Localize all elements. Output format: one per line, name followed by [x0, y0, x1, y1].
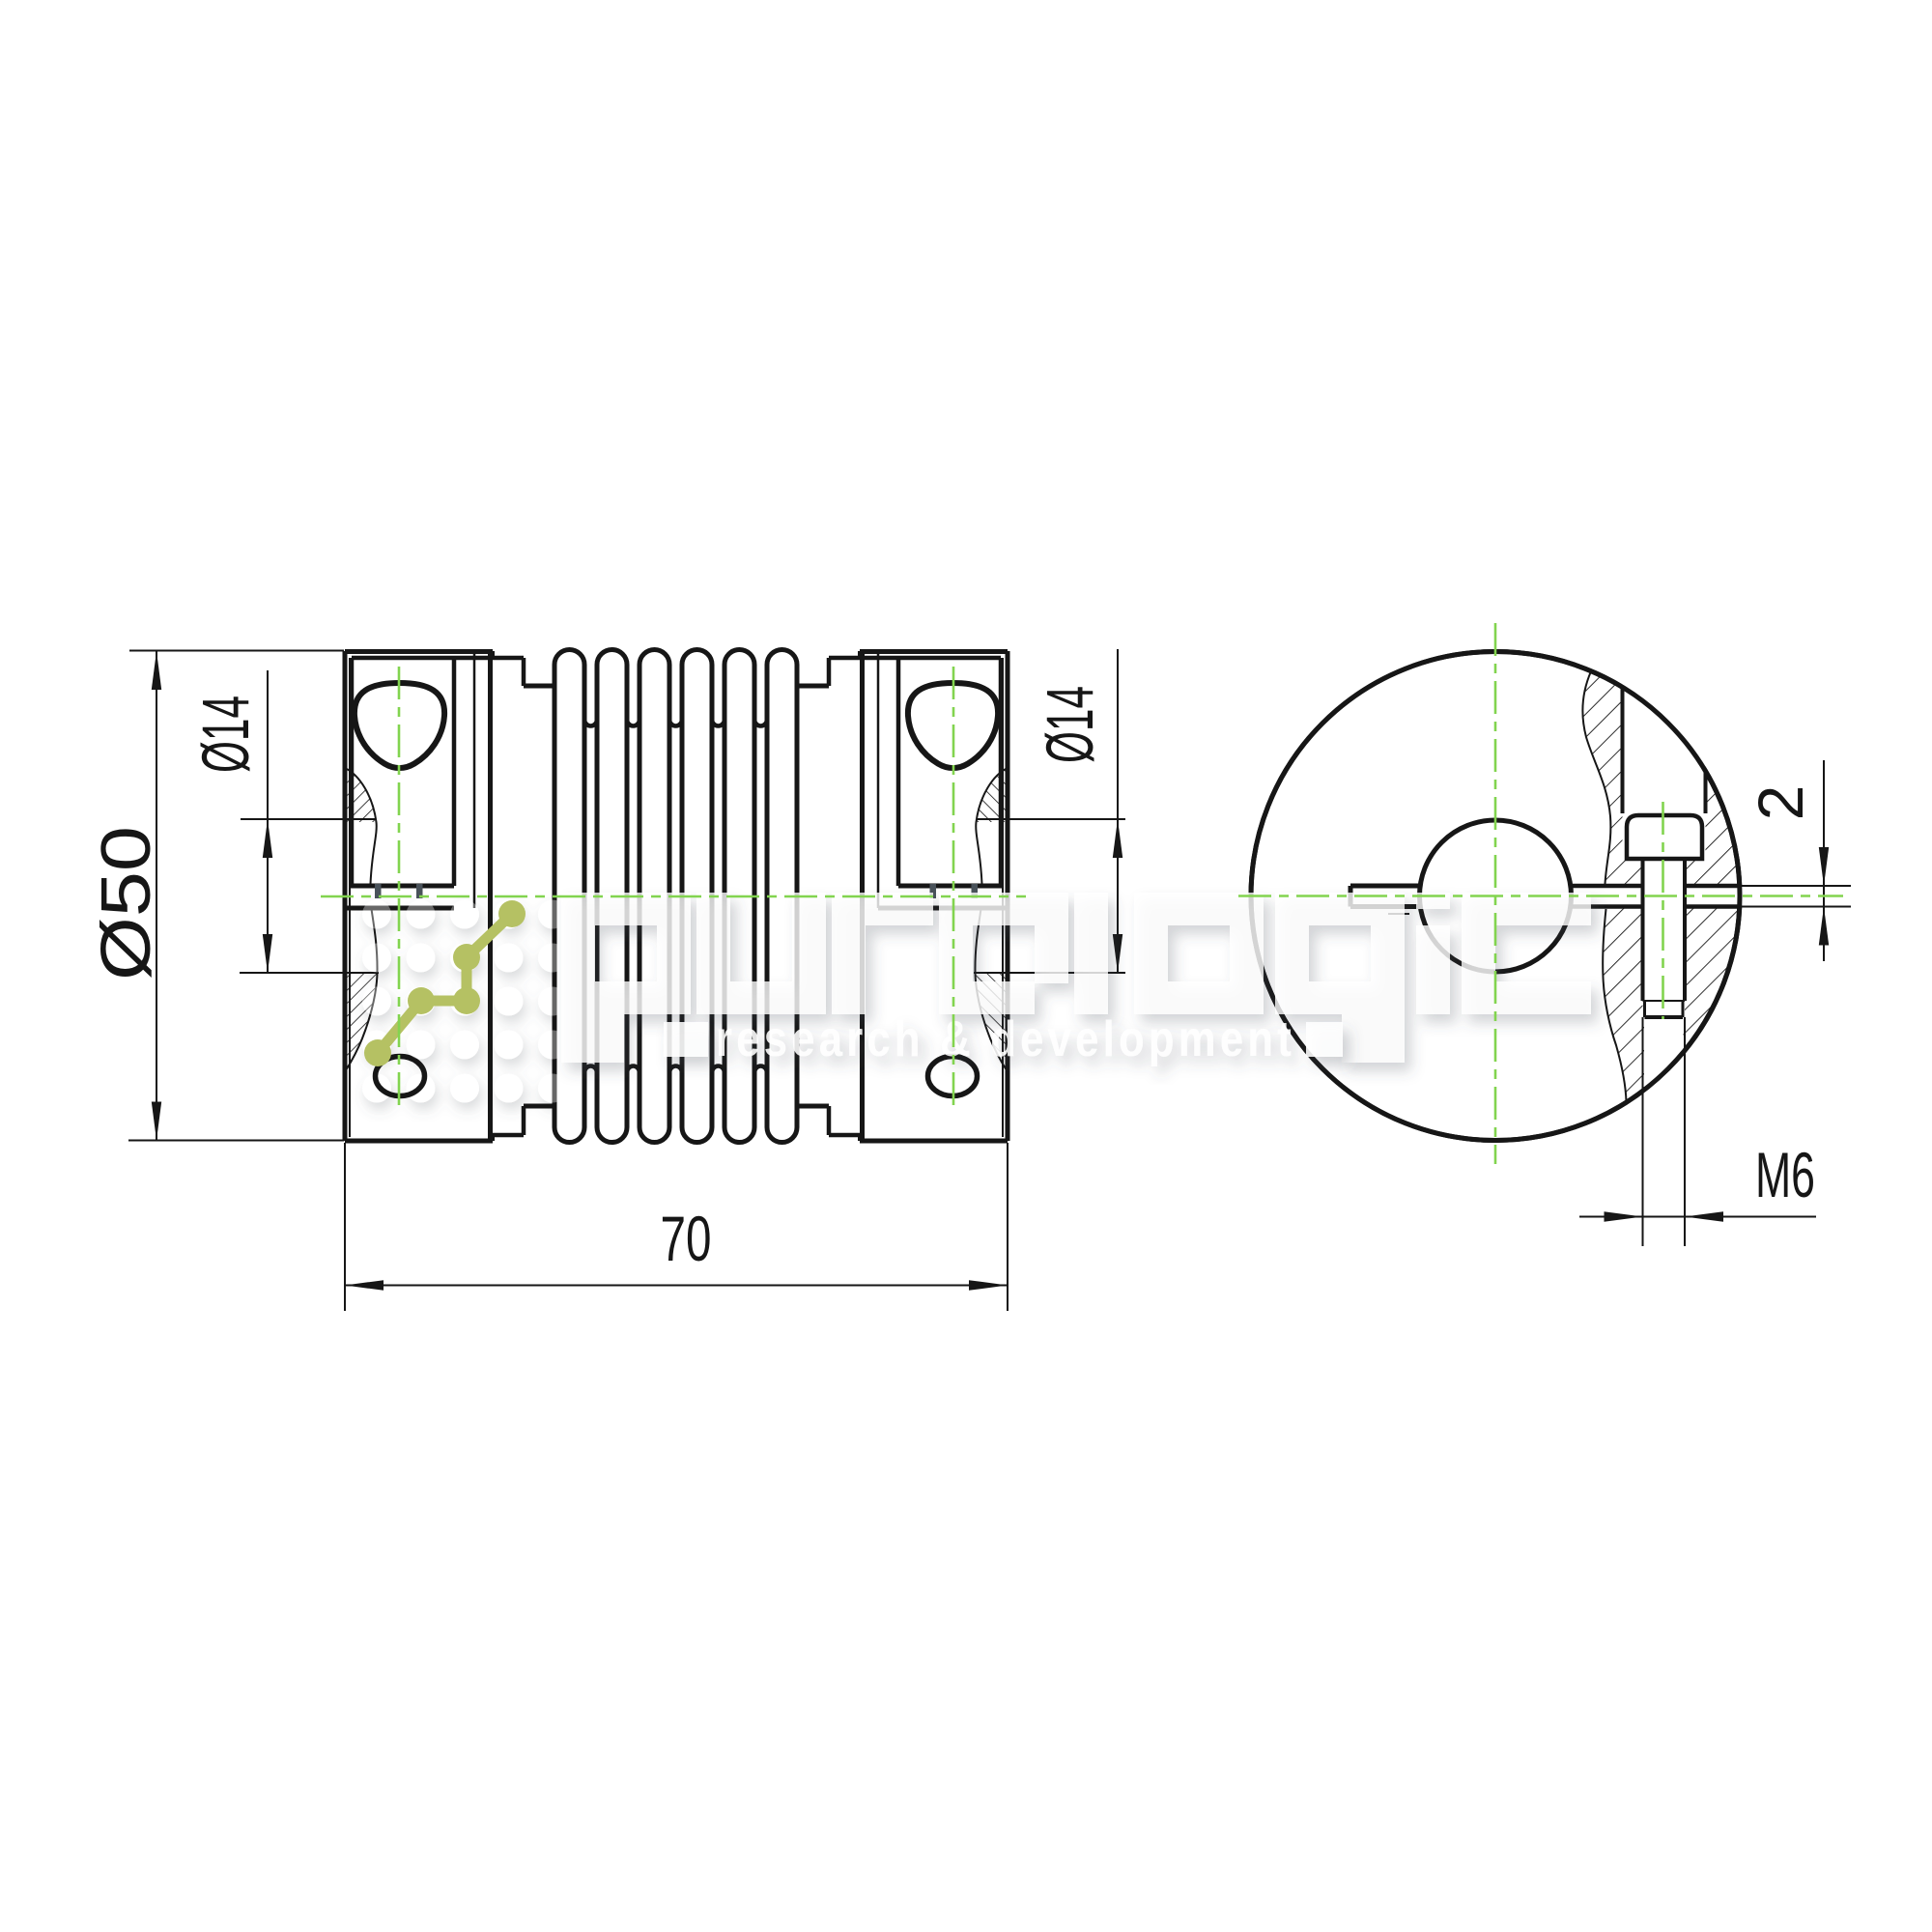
svg-text:Ø50: Ø50: [88, 826, 165, 980]
svg-text:Ø14: Ø14: [1033, 686, 1107, 763]
svg-text:M6: M6: [1755, 1139, 1815, 1210]
svg-text:Ø14: Ø14: [188, 696, 263, 773]
svg-text:2: 2: [1745, 785, 1816, 821]
svg-text:research & development: research & development: [716, 1011, 1295, 1067]
svg-text:70: 70: [661, 1203, 712, 1274]
